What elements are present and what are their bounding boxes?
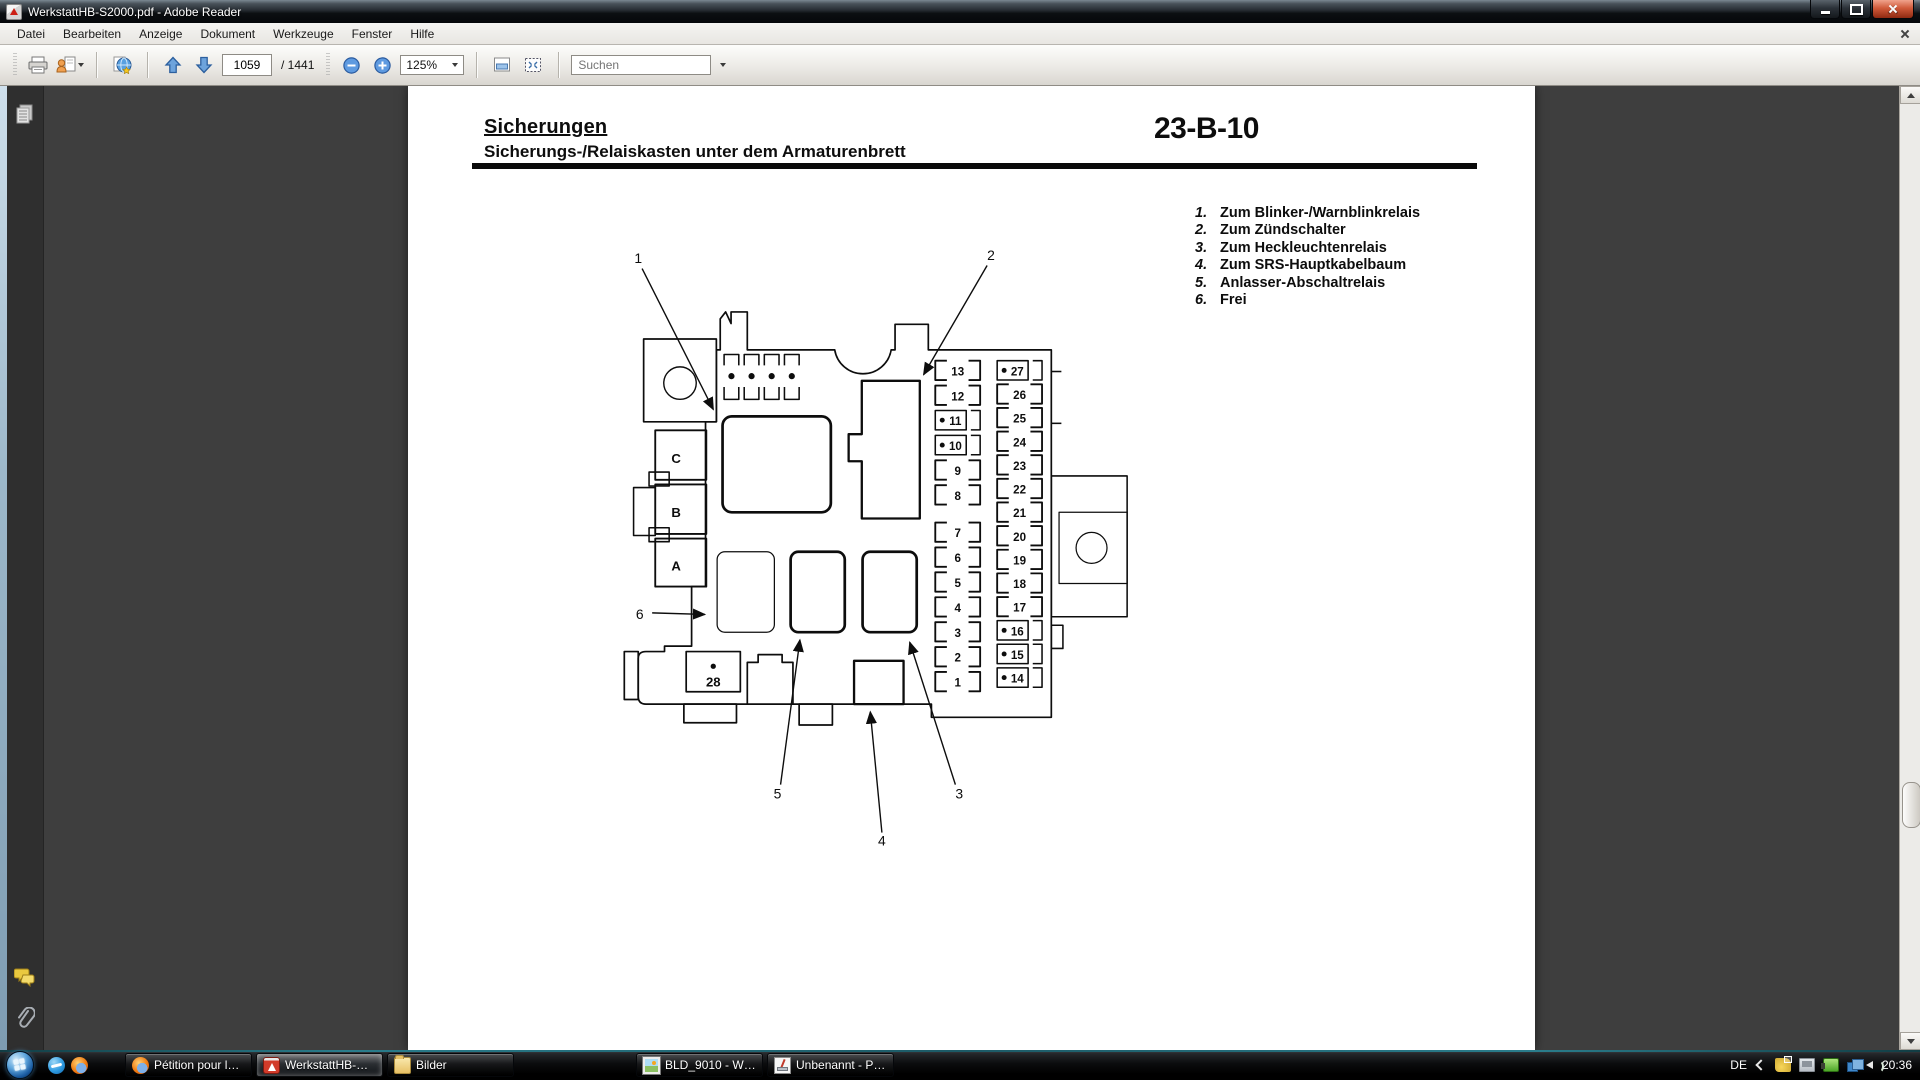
scroll-up-button[interactable]: [1900, 86, 1920, 104]
start-button[interactable]: [6, 1051, 34, 1079]
svg-text:26: 26: [1013, 389, 1026, 402]
display-icon[interactable]: [1799, 1058, 1815, 1072]
svg-text:23: 23: [1013, 460, 1026, 473]
firefox-icon: [132, 1057, 149, 1074]
svg-text:15: 15: [1011, 649, 1024, 662]
svg-text:2: 2: [987, 247, 995, 263]
legend-item-text: Zum Zündschalter: [1220, 222, 1346, 239]
legend-item-6: 6.Frei: [1195, 292, 1445, 309]
system-tray: DE 20:36: [1730, 1058, 1920, 1072]
page-heading: Sicherungen: [484, 116, 607, 139]
taskbar-button-label: Pétition pour le circ...: [154, 1058, 245, 1072]
toolbar-separator: [558, 52, 559, 78]
menu-bearbeiten[interactable]: Bearbeiten: [54, 24, 130, 44]
workspace: Sicherungen Sicherungs-/Relaiskasten unt…: [0, 86, 1920, 1050]
online-services-button[interactable]: [109, 51, 135, 79]
menu-dokument[interactable]: Dokument: [191, 24, 264, 44]
taskbar-button-folder[interactable]: Bilder: [387, 1053, 514, 1077]
menu-anzeige[interactable]: Anzeige: [130, 24, 191, 44]
taskbar-buttons: Pétition pour le circ...WerkstattHB-S200…: [125, 1053, 894, 1077]
legend-item-3: 3.Zum Heckleuchtenrelais: [1195, 240, 1445, 257]
titlebar: WerkstattHB-S2000.pdf - Adobe Reader: [0, 0, 1920, 23]
zoom-in-button[interactable]: [369, 51, 395, 79]
window-title: WerkstattHB-S2000.pdf - Adobe Reader: [28, 5, 241, 19]
svg-text:22: 22: [1013, 484, 1026, 497]
svg-text:C: C: [671, 451, 681, 466]
vertical-scrollbar[interactable]: [1899, 86, 1920, 1050]
folder-icon: [394, 1057, 411, 1074]
toolbar-separator: [476, 52, 477, 78]
scroll-up-icon: [1907, 93, 1915, 98]
legend-item-text: Zum Blinker-/Warnblinkrelais: [1220, 205, 1420, 222]
fullscreen-button[interactable]: [520, 51, 546, 79]
legend-item-text: Zum SRS-Hauptkabelbaum: [1220, 257, 1406, 274]
page-code: 23-B-10: [1154, 112, 1259, 146]
maximize-button[interactable]: [1841, 0, 1871, 19]
page-count-label: / 1441: [281, 58, 314, 72]
previous-page-button[interactable]: [160, 51, 186, 79]
svg-text:6: 6: [954, 552, 961, 565]
svg-text:16: 16: [1011, 625, 1024, 638]
page-subheading: Sicherungs-/Relaiskasten unter dem Armat…: [484, 142, 906, 162]
toolbar-separator: [147, 52, 148, 78]
printer-icon: [27, 56, 49, 74]
svg-text:A: A: [671, 558, 681, 573]
page-thumbnails-icon: [15, 103, 35, 127]
taskbar-button-label: WerkstattHB-S2000....: [285, 1058, 376, 1072]
legend-item-5: 5.Anlasser-Abschaltrelais: [1195, 275, 1445, 292]
legend-item-4: 4.Zum SRS-Hauptkabelbaum: [1195, 257, 1445, 274]
menubar: DateiBearbeitenAnzeigeDokumentWerkzeugeF…: [0, 23, 1920, 45]
internet-explorer-icon[interactable]: [48, 1057, 65, 1074]
minimize-button[interactable]: [1810, 0, 1840, 19]
svg-text:1: 1: [634, 250, 642, 266]
menu-datei[interactable]: Datei: [8, 24, 54, 44]
svg-text:19: 19: [1013, 554, 1026, 567]
share-dropdown-caret[interactable]: [78, 63, 84, 67]
svg-text:12: 12: [951, 390, 964, 403]
toolbar-grip: [13, 53, 17, 77]
fuse-legend: 1.Zum Blinker-/Warnblinkrelais2.Zum Zünd…: [1195, 205, 1445, 309]
taskbar-button-label: Unbenannt - Paint: [796, 1058, 887, 1072]
taskbar-button-firefox[interactable]: Pétition pour le circ...: [125, 1053, 252, 1077]
zoom-level-value: 125%: [406, 58, 437, 72]
svg-text:3: 3: [955, 786, 963, 802]
desktop: WerkstattHB-S2000.pdf - Adobe Reader Dat…: [0, 0, 1920, 1080]
menu-werkzeuge[interactable]: Werkzeuge: [264, 24, 342, 44]
search-dropdown-caret[interactable]: [720, 63, 726, 67]
zoom-dropdown-caret[interactable]: [452, 63, 458, 67]
svg-text:11: 11: [949, 415, 962, 428]
toolbar: / 1441 125%: [0, 45, 1920, 86]
zoom-out-button[interactable]: [338, 51, 364, 79]
quick-launch: [48, 1057, 88, 1074]
next-page-button[interactable]: [191, 51, 217, 79]
svg-text:20: 20: [1013, 531, 1026, 544]
svg-text:10: 10: [949, 440, 962, 453]
fit-width-icon: [492, 56, 512, 74]
svg-text:8: 8: [954, 490, 961, 503]
legend-item-1: 1.Zum Blinker-/Warnblinkrelais: [1195, 205, 1445, 222]
pdf-icon: [263, 1057, 280, 1074]
legend-item-number: 2.: [1195, 222, 1220, 239]
legend-item-2: 2.Zum Zündschalter: [1195, 222, 1445, 239]
legend-item-text: Zum Heckleuchtenrelais: [1220, 240, 1387, 257]
svg-text:21: 21: [1013, 507, 1026, 520]
document-close-icon[interactable]: [1898, 27, 1912, 41]
svg-text:9: 9: [954, 465, 961, 478]
navigation-sidebar: [7, 86, 44, 1050]
document-area: Sicherungen Sicherungs-/Relaiskasten unt…: [44, 86, 1899, 1050]
svg-text:2: 2: [954, 652, 960, 665]
zoom-level-combobox[interactable]: 125%: [400, 55, 464, 75]
globe-document-icon: [112, 56, 133, 74]
close-button[interactable]: [1872, 0, 1914, 19]
menu-hilfe[interactable]: Hilfe: [401, 24, 443, 44]
close-icon: [1888, 4, 1898, 14]
svg-text:7: 7: [954, 527, 960, 540]
pdf-page: Sicherungen Sicherungs-/Relaiskasten unt…: [408, 86, 1535, 1050]
taskbar-button-pdf[interactable]: WerkstattHB-S2000....: [256, 1053, 383, 1077]
scrollbar-thumb[interactable]: [1902, 782, 1920, 828]
svg-text:17: 17: [1013, 602, 1026, 615]
svg-text:4: 4: [954, 602, 961, 615]
svg-text:27: 27: [1011, 365, 1024, 378]
arrow-up-icon: [163, 55, 183, 75]
paperclip-icon: [15, 1007, 35, 1031]
svg-text:3: 3: [954, 627, 961, 640]
zoom-out-icon: [342, 56, 361, 75]
tray-expand-icon[interactable]: [1755, 1059, 1766, 1070]
pen-input-icon[interactable]: [1775, 1058, 1791, 1072]
scrolling-mode-button[interactable]: [489, 51, 515, 79]
adobe-reader-app-icon: [6, 4, 22, 20]
windows-logo-icon: [13, 1058, 26, 1071]
svg-text:6: 6: [636, 606, 644, 622]
legend-item-text: Anlasser-Abschaltrelais: [1220, 275, 1385, 292]
svg-text:5: 5: [774, 786, 782, 802]
svg-text:1: 1: [954, 677, 961, 690]
page-number-input[interactable]: [222, 54, 272, 76]
power-icon[interactable]: [1823, 1058, 1839, 1072]
toolbar-grip: [326, 53, 330, 77]
taskbar: Pétition pour le circ...WerkstattHB-S200…: [0, 1050, 1920, 1080]
comments-icon: [14, 967, 36, 987]
network-icon[interactable]: [1847, 1062, 1858, 1072]
photo-icon: [643, 1057, 660, 1074]
volume-icon[interactable]: [1866, 1058, 1874, 1072]
minimize-icon: [1821, 11, 1830, 14]
svg-text:28: 28: [706, 674, 721, 689]
menu-fenster[interactable]: Fenster: [343, 24, 402, 44]
clock[interactable]: 20:36: [1882, 1058, 1912, 1072]
legend-item-number: 1.: [1195, 205, 1220, 222]
person-document-icon: [56, 56, 76, 74]
pages-panel-button[interactable]: [13, 102, 37, 128]
svg-text:13: 13: [951, 365, 964, 378]
share-document-button[interactable]: [56, 51, 84, 79]
taskbar-button-photo[interactable]: BLD_9010 - Window...: [636, 1053, 763, 1077]
svg-text:25: 25: [1013, 413, 1026, 426]
print-button[interactable]: [25, 51, 51, 79]
language-indicator[interactable]: DE: [1730, 1058, 1747, 1072]
taskbar-button-label: BLD_9010 - Window...: [665, 1058, 756, 1072]
arrow-down-icon: [194, 55, 214, 75]
fullscreen-icon: [523, 56, 543, 74]
toolbar-separator: [96, 52, 97, 78]
svg-text:14: 14: [1011, 673, 1024, 686]
attachments-panel-button[interactable]: [13, 1006, 37, 1032]
svg-text:B: B: [671, 505, 681, 520]
taskbar-button-label: Bilder: [416, 1058, 447, 1072]
scroll-down-icon: [1907, 1039, 1915, 1044]
taskbar-button-paint[interactable]: Unbenannt - Paint: [767, 1053, 894, 1077]
firefox-icon[interactable]: [71, 1057, 88, 1074]
svg-text:24: 24: [1013, 436, 1026, 449]
search-input[interactable]: [571, 55, 711, 75]
window-edge: [0, 86, 7, 1050]
restore-icon: [1850, 4, 1863, 15]
heading-rule: [472, 163, 1477, 169]
fusebox-diagram: 1312111098765432127262524232221201918171…: [540, 240, 1230, 1050]
comments-panel-button[interactable]: [13, 964, 37, 990]
zoom-in-icon: [373, 56, 392, 75]
paint-icon: [774, 1057, 791, 1074]
svg-text:18: 18: [1013, 578, 1026, 591]
svg-text:4: 4: [878, 833, 886, 849]
scroll-down-button[interactable]: [1900, 1032, 1920, 1050]
svg-text:5: 5: [954, 577, 961, 590]
